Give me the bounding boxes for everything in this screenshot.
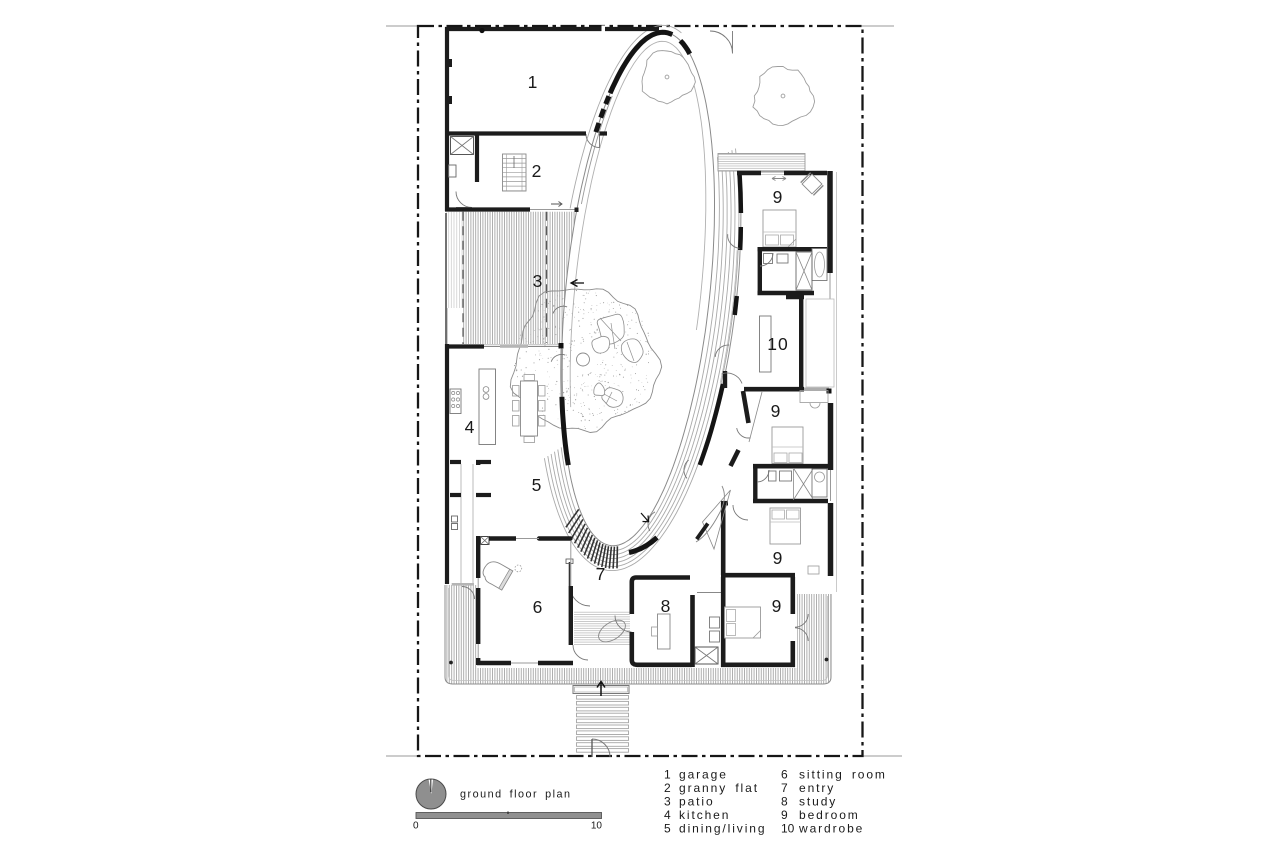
svg-text:1: 1 [664, 768, 671, 782]
svg-text:bedroom: bedroom [799, 808, 860, 822]
svg-text:1: 1 [528, 72, 539, 92]
svg-text:0: 0 [413, 821, 419, 832]
svg-text:5: 5 [664, 822, 671, 836]
svg-text:entry: entry [799, 781, 835, 795]
svg-text:9: 9 [773, 548, 784, 568]
svg-text:patio: patio [679, 795, 715, 809]
svg-text:5: 5 [532, 475, 543, 495]
svg-text:10: 10 [767, 334, 788, 354]
svg-text:2: 2 [532, 161, 543, 181]
svg-text:granny flat: granny flat [679, 781, 759, 795]
svg-text:10: 10 [591, 821, 603, 832]
svg-text:9: 9 [781, 808, 788, 822]
svg-text:10: 10 [781, 822, 795, 836]
svg-text:wardrobe: wardrobe [798, 822, 864, 836]
svg-text:sitting room: sitting room [799, 768, 887, 782]
svg-text:9: 9 [771, 401, 782, 421]
svg-text:ground floor plan: ground floor plan [460, 789, 572, 801]
svg-text:4: 4 [664, 808, 671, 822]
svg-text:2: 2 [664, 781, 671, 795]
svg-text:9: 9 [772, 596, 783, 616]
svg-text:3: 3 [664, 795, 671, 809]
svg-text:kitchen: kitchen [679, 808, 730, 822]
svg-text:7: 7 [781, 781, 788, 795]
svg-text:garage: garage [679, 768, 728, 782]
svg-text:6: 6 [781, 768, 788, 782]
svg-text:9: 9 [773, 187, 784, 207]
svg-text:dining/living: dining/living [679, 822, 766, 836]
svg-text:4: 4 [465, 417, 476, 437]
svg-text:8: 8 [661, 596, 672, 616]
svg-text:3: 3 [533, 271, 544, 291]
svg-text:8: 8 [781, 795, 788, 809]
svg-text:6: 6 [533, 597, 544, 617]
svg-text:study: study [799, 795, 837, 809]
svg-text:7: 7 [596, 564, 607, 584]
